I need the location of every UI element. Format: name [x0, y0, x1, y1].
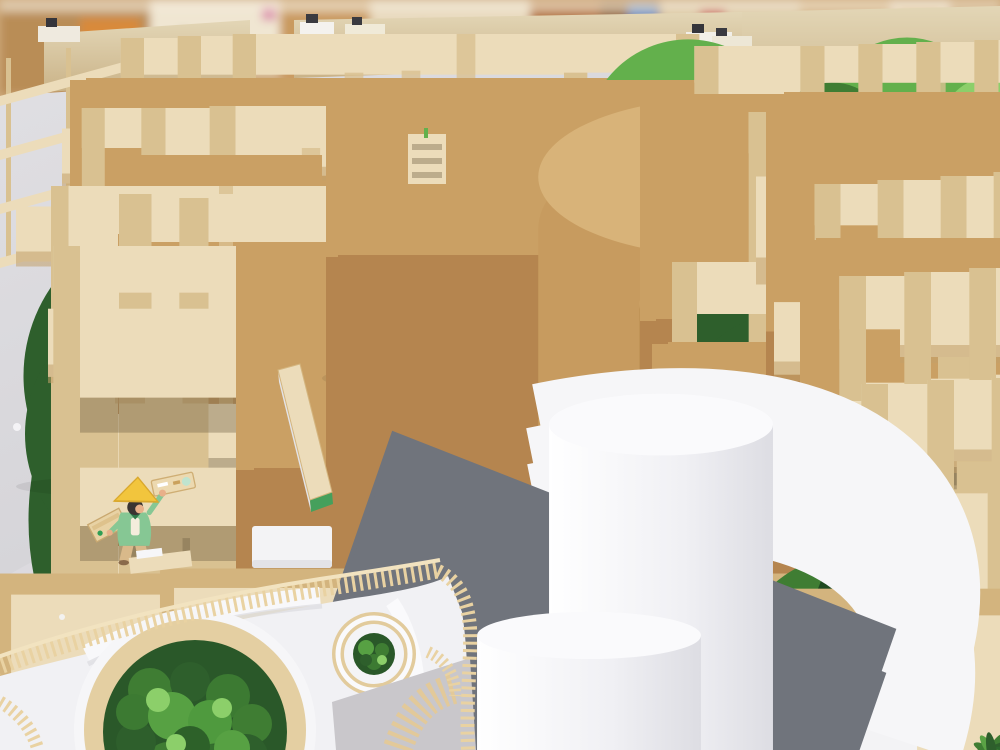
mascot-shirt [131, 518, 140, 536]
floor-dot [59, 614, 65, 620]
mascot-face [135, 505, 144, 514]
mascot-shoe [118, 560, 129, 565]
mascot-hand [107, 530, 113, 536]
floor-dot [13, 423, 21, 431]
hat-brim [114, 501, 158, 502]
atrium-cylinder [457, 612, 722, 750]
mini-shelf [408, 128, 446, 184]
mascot-hand [159, 490, 166, 497]
scene-canvas [0, 0, 1000, 750]
store-render [0, 0, 1000, 750]
